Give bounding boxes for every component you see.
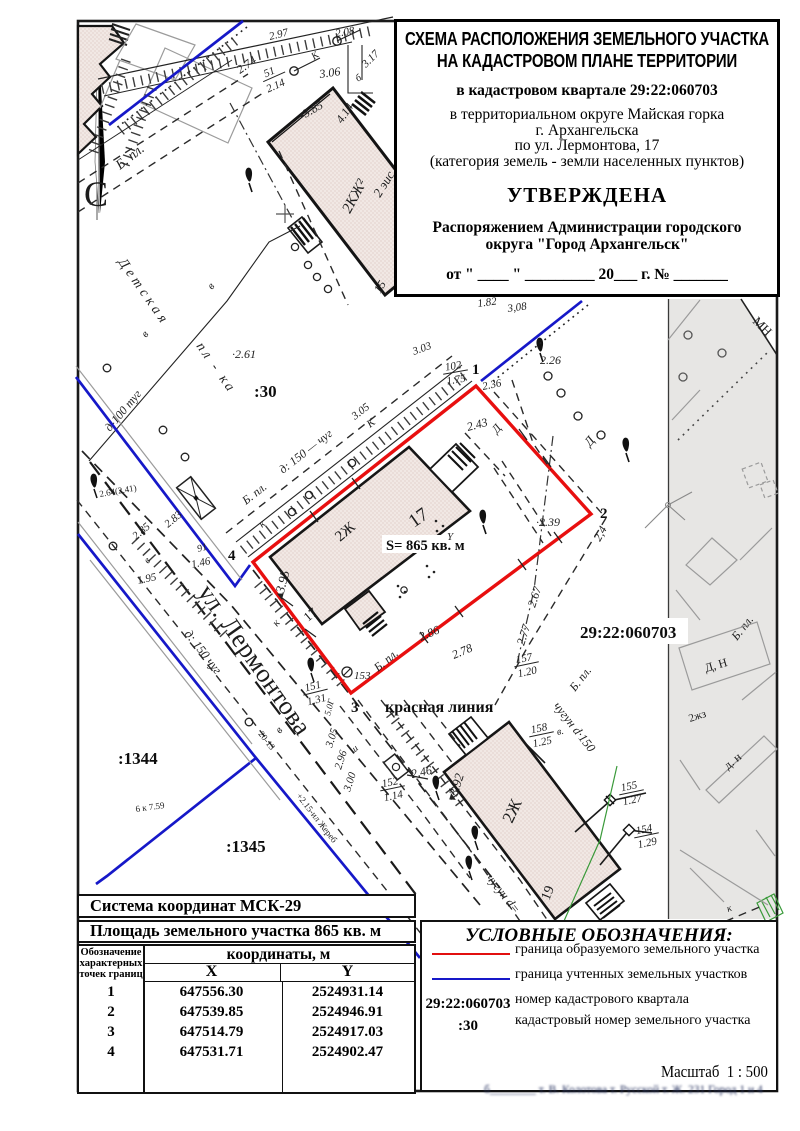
svg-text:С: С <box>84 174 108 214</box>
svg-text::1345: :1345 <box>226 837 266 856</box>
svg-text:1: 1 <box>472 362 480 378</box>
svg-text:·2.39: ·2.39 <box>536 515 560 529</box>
svg-text::1344: :1344 <box>118 749 158 768</box>
svg-text::30: :30 <box>254 382 277 401</box>
svg-text:2.26: 2.26 <box>540 353 561 367</box>
svg-text:2: 2 <box>600 506 608 522</box>
svg-text:4: 4 <box>228 548 236 564</box>
svg-text:·2.61: ·2.61 <box>232 347 256 361</box>
svg-text:153: 153 <box>354 670 371 682</box>
svg-text:красная линия: красная линия <box>385 699 494 716</box>
svg-text:3: 3 <box>351 700 359 716</box>
svg-text:29:22:060703: 29:22:060703 <box>580 623 676 642</box>
